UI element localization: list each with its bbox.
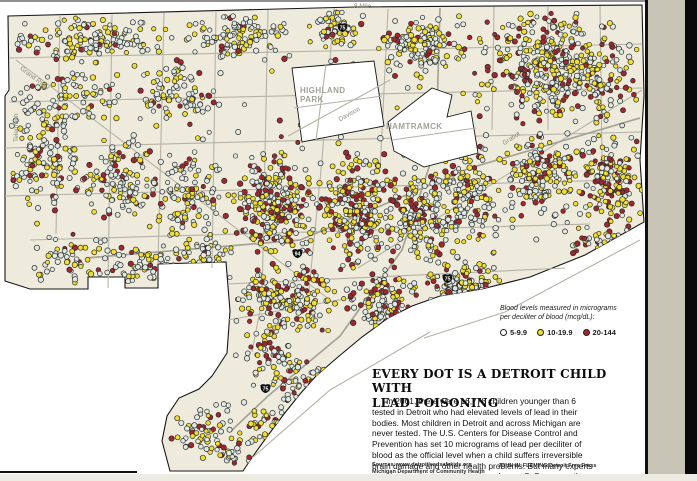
- road-label-telegraph: Telegraph: [14, 113, 21, 142]
- enclave-label-highland-park: HIGHLAND PARK: [300, 86, 345, 104]
- byline-credit: JOHN W. FLEMING/Detroit Free Press: [498, 463, 596, 469]
- svg-text:75: 75: [263, 387, 269, 393]
- bottom-strip: [0, 474, 697, 481]
- bottom-left-rule: [0, 471, 137, 473]
- svg-text:94: 94: [295, 252, 301, 258]
- legend-dot-mid-icon: [537, 329, 544, 336]
- svg-text:75: 75: [340, 26, 346, 32]
- legend-label-mid: 10-19.9: [547, 328, 572, 337]
- legend: Blood levels measured in micrograms per …: [500, 304, 650, 337]
- right-edge-bar: [685, 0, 697, 474]
- legend-label-low: 5-9.9: [510, 328, 527, 337]
- top-edge-line: [0, 0, 646, 2]
- svg-text:75: 75: [445, 277, 451, 283]
- lead-poisoning-map-page: 75947575 8 Mile Telegraph Grand River Da…: [0, 0, 697, 481]
- legend-item-low: 5-9.9: [500, 328, 527, 337]
- legend-dot-low-icon: [500, 329, 507, 336]
- road-label-8-mile: 8 Mile: [354, 4, 371, 11]
- legend-items: 5-9.9 10-19.9 20-144: [500, 328, 650, 337]
- legend-dot-high-icon: [583, 329, 590, 336]
- legend-item-mid: 10-19.9: [537, 328, 572, 337]
- legend-item-high: 20-144: [583, 328, 616, 337]
- enclave-label-hamtramck: HAMTRAMCK: [386, 122, 442, 131]
- legend-label-high: 20-144: [593, 328, 616, 337]
- legend-heading: Blood levels measured in micrograms per …: [500, 304, 650, 322]
- right-side-strip: [648, 0, 685, 474]
